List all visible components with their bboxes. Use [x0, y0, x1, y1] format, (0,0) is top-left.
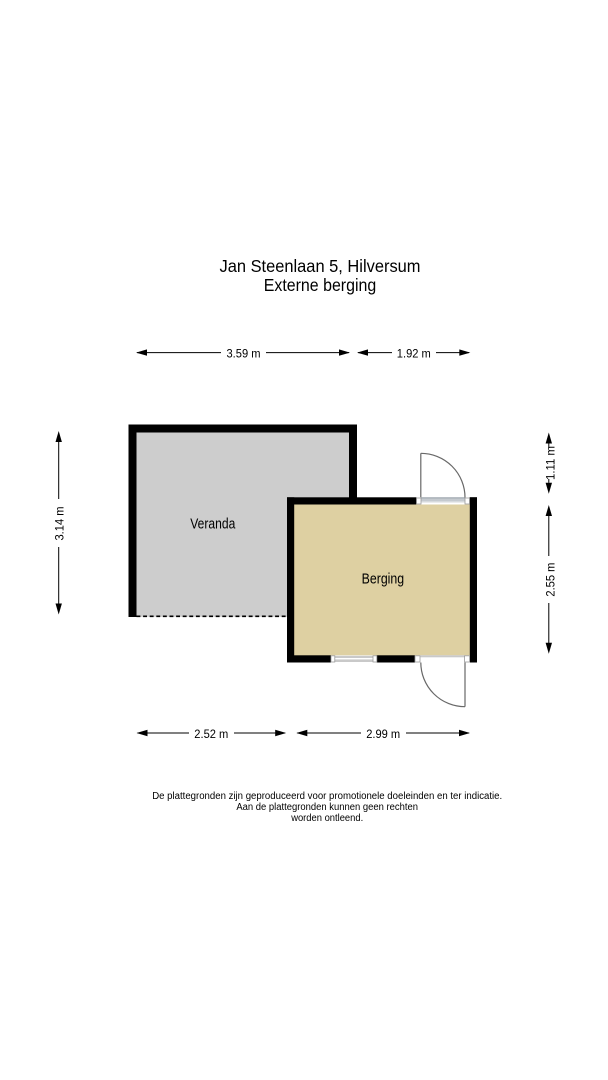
svg-text:2.99 m: 2.99 m — [366, 729, 400, 741]
svg-text:1.92 m: 1.92 m — [397, 349, 431, 361]
svg-text:2.52 m: 2.52 m — [194, 729, 228, 741]
svg-text:worden ontleend.: worden ontleend. — [290, 813, 363, 824]
svg-text:1.11 m: 1.11 m — [545, 446, 557, 480]
svg-text:De plattegronden zijn geproduc: De plattegronden zijn geproduceerd voor … — [152, 791, 502, 802]
svg-text:3.14 m: 3.14 m — [54, 507, 66, 541]
svg-text:3.59 m: 3.59 m — [227, 349, 261, 361]
svg-text:Aan de plattegronden kunnen ge: Aan de plattegronden kunnen geen rechten — [236, 802, 418, 813]
svg-text:Veranda: Veranda — [190, 516, 236, 532]
svg-text:Jan Steenlaan 5, Hilversum: Jan Steenlaan 5, Hilversum — [220, 256, 421, 276]
svg-text:2.55 m: 2.55 m — [545, 563, 557, 597]
svg-text:Externe berging: Externe berging — [264, 275, 377, 295]
svg-text:Berging: Berging — [362, 572, 405, 588]
